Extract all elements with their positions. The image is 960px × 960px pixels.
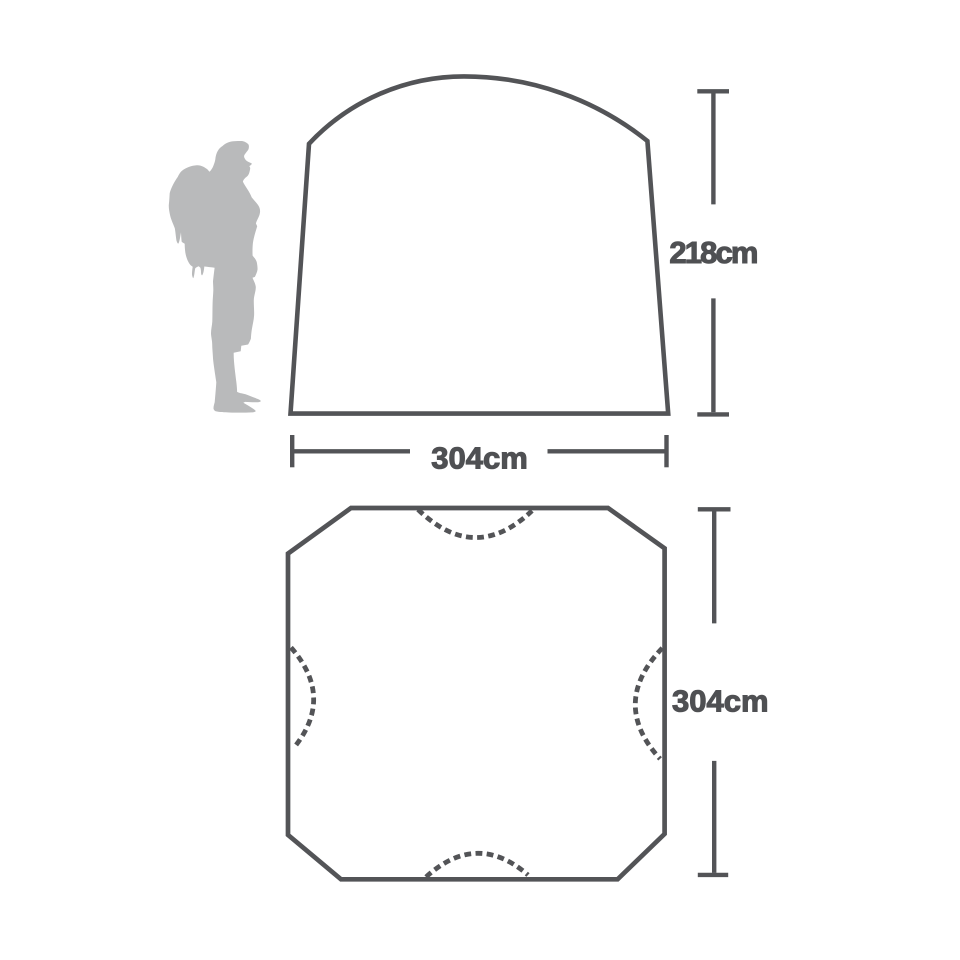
svg-text:304cm: 304cm: [672, 684, 769, 719]
svg-text:218cm: 218cm: [669, 235, 757, 270]
svg-text:304cm: 304cm: [431, 441, 528, 476]
